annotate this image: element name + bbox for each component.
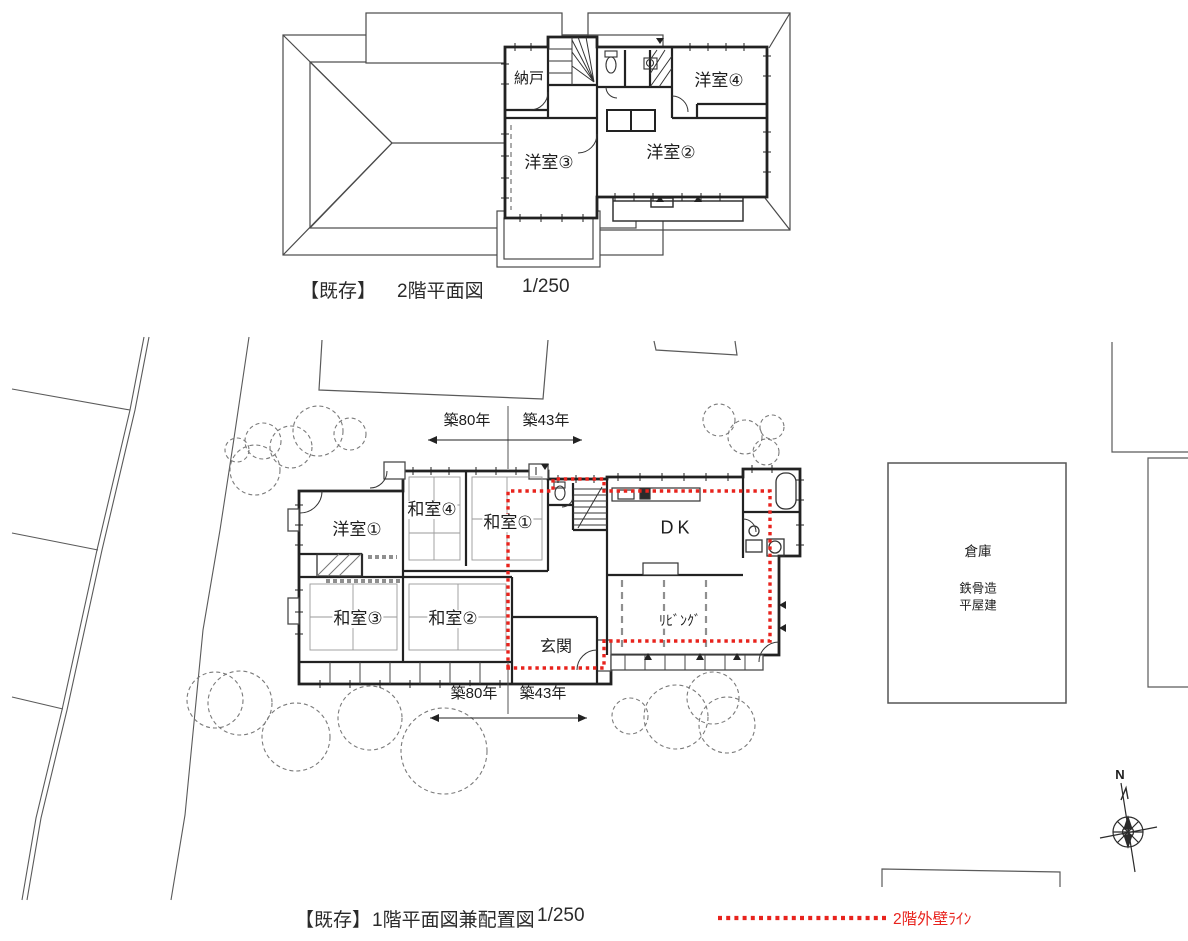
floor2-balcony — [613, 197, 743, 221]
room-label-yoshitsu1: 洋室① — [331, 521, 382, 539]
floor2-caption-tag: 【既存】 — [300, 276, 376, 303]
room-label-yoshitsu2: 洋室② — [645, 144, 696, 162]
floor1-caption-title: 1階平面図兼配置図 — [372, 905, 535, 932]
floor2-caption-scale: 1/250 — [522, 276, 570, 298]
warehouse-name-label: 倉庫 — [964, 545, 993, 559]
room-label-yoshitsu4: 洋室④ — [693, 72, 744, 90]
floor1-caption-scale: 1/250 — [537, 905, 585, 927]
room-label-living: ﾘﾋﾞﾝｸﾞ — [658, 614, 702, 629]
room-label-dk: DK — [659, 519, 694, 538]
floor2-caption-title: 2階平面図 — [397, 276, 484, 303]
legend-red-line-label: 2階外壁ﾗｲﾝ — [893, 907, 971, 929]
room-label-nando: 納戸 — [513, 71, 545, 87]
age-label-80-bottom: 築80年 — [450, 686, 499, 702]
room-label-washitsu1: 和室① — [482, 514, 533, 532]
architectural-drawing-sheet: 納戸 洋室③ 洋室② 洋室④ 【既存】 2階平面図 1/250 築80年 築43… — [0, 0, 1188, 941]
warehouse-structure-label: 鉄骨造 — [958, 582, 998, 595]
room-label-washitsu4: 和室④ — [406, 501, 457, 519]
compass-north-label: N — [1114, 768, 1125, 782]
age-label-80-top: 築80年 — [443, 413, 492, 429]
age-label-43-top: 築43年 — [522, 413, 571, 429]
room-label-washitsu2: 和室② — [427, 610, 478, 628]
site-boundary-lines — [12, 337, 249, 900]
warehouse-stories-label: 平屋建 — [958, 599, 998, 612]
room-label-genkan: 玄関 — [539, 640, 573, 657]
room-label-washitsu3: 和室③ — [332, 610, 383, 628]
drawing-linework — [0, 0, 1188, 941]
floor1-caption-tag: 【既存】 — [295, 905, 371, 932]
age-label-43-bottom: 築43年 — [519, 686, 568, 702]
compass-rose — [1100, 783, 1157, 872]
room-label-yoshitsu3: 洋室③ — [523, 154, 574, 172]
